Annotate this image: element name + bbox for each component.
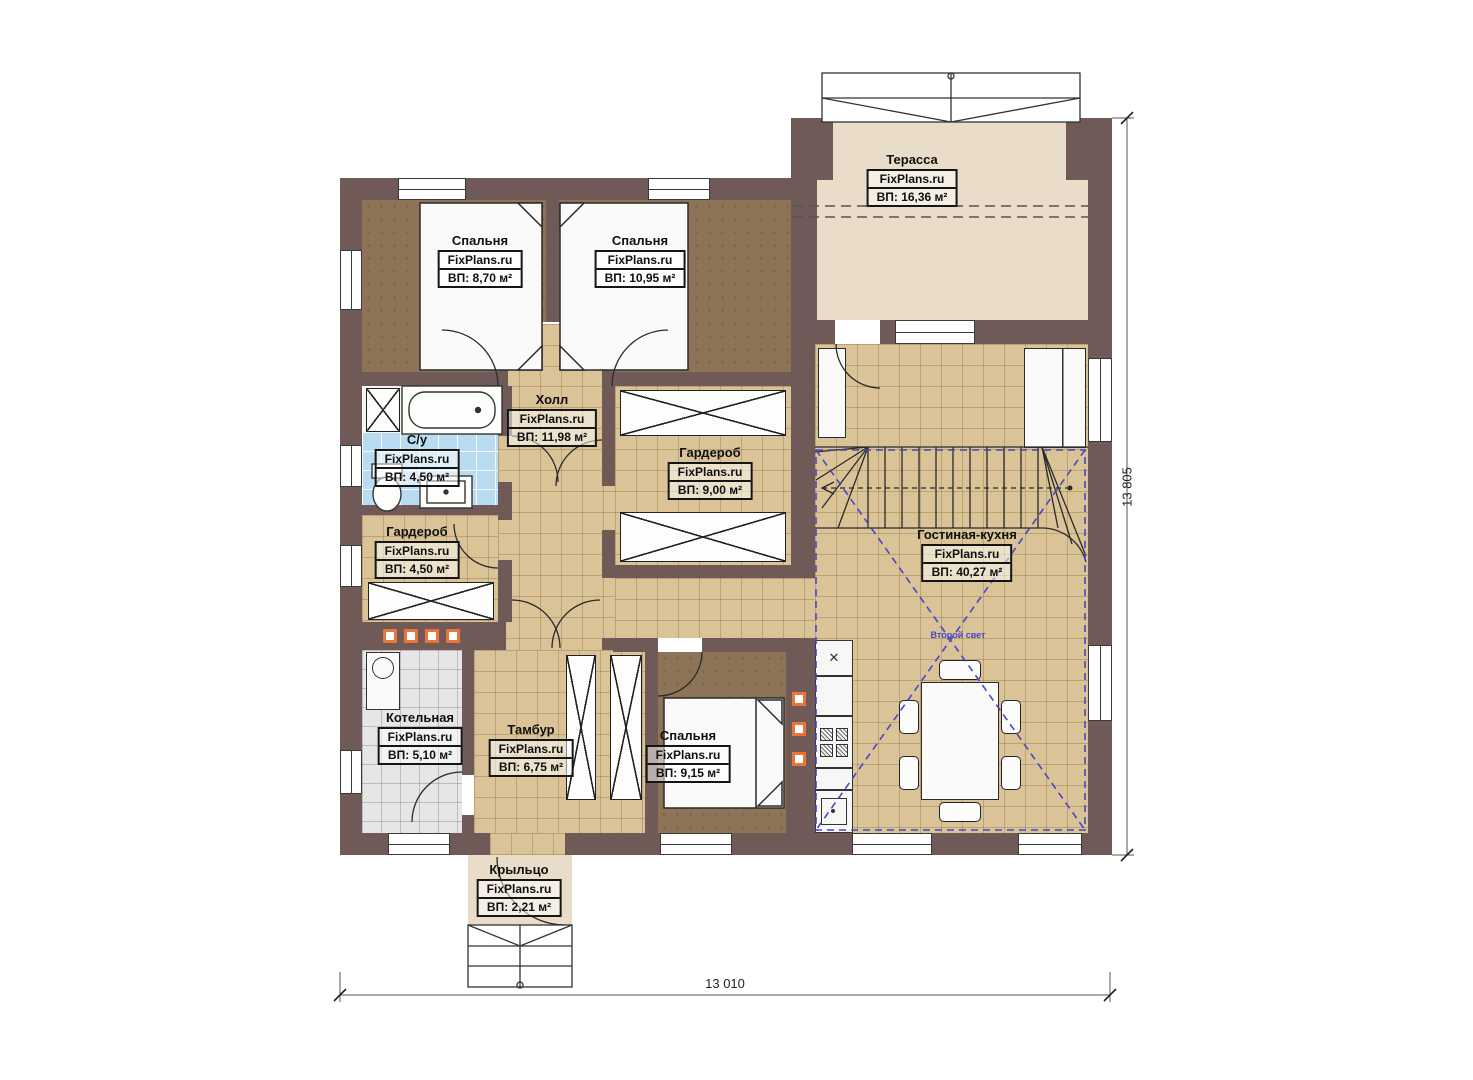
vent-marker (792, 752, 806, 766)
kitchen-sink (815, 790, 853, 833)
kitchen-counter: ✕ (815, 640, 853, 676)
brand-label: FixPlans.ru (869, 171, 956, 189)
room-label-wardrobe-small: Гардероб FixPlans.ru ВП: 4,50 м² (375, 524, 460, 579)
room-info-box: FixPlans.ru ВП: 16,36 м² (867, 169, 958, 207)
window (1088, 645, 1112, 721)
stove (815, 716, 853, 768)
chair (1001, 756, 1021, 790)
wall-segment (1088, 118, 1112, 855)
brand-label: FixPlans.ru (597, 252, 684, 270)
room-name: Крыльцо (477, 862, 562, 877)
room-name: Котельная (378, 710, 463, 725)
window (1018, 833, 1082, 855)
room-info-box: FixPlans.ru ВП: 4,50 м² (375, 541, 460, 579)
second-light-note: Второй свет (931, 630, 986, 640)
vent-marker (404, 629, 418, 643)
vent-marker (425, 629, 439, 643)
dining-table (921, 682, 999, 800)
brand-label: FixPlans.ru (377, 543, 458, 561)
wall-segment (702, 638, 791, 652)
room-name: С/у (375, 432, 460, 447)
room-name: Холл (507, 392, 597, 407)
wardrobe-cabinet (620, 390, 786, 436)
sink-basin (821, 798, 847, 825)
kitchen-counter (815, 676, 853, 716)
terrace-column (791, 118, 833, 180)
room-info-box: FixPlans.ru ВП: 6,75 м² (489, 739, 574, 777)
room-label-boiler-room: Котельная FixPlans.ru ВП: 5,10 м² (378, 710, 463, 765)
window (340, 750, 362, 794)
room-area: ВП: 11,98 м² (509, 429, 595, 445)
window (340, 250, 362, 310)
sofa (818, 348, 846, 438)
window (388, 833, 450, 855)
room-label-living-kitchen: Гостиная-кухня FixPlans.ru ВП: 40,27 м² (917, 527, 1017, 582)
room-name: Гардероб (668, 445, 753, 460)
wall-segment (613, 565, 791, 578)
wall-segment (546, 200, 559, 322)
chair (939, 660, 981, 680)
wall-segment (791, 320, 835, 344)
brand-label: FixPlans.ru (924, 546, 1011, 564)
room-info-box: FixPlans.ru ВП: 8,70 м² (438, 250, 523, 288)
room-name: Спальня (595, 233, 686, 248)
room-info-box: FixPlans.ru ВП: 5,10 м² (378, 727, 463, 765)
room-label-bathroom: С/у FixPlans.ru ВП: 4,50 м² (375, 432, 460, 487)
vent-marker (383, 629, 397, 643)
room-area: ВП: 4,50 м² (377, 561, 458, 577)
room-label-vestibule: Тамбур FixPlans.ru ВП: 6,75 м² (489, 722, 574, 777)
room-area: ВП: 40,27 м² (924, 564, 1011, 580)
room-name: Терасса (867, 152, 958, 167)
wall-segment (498, 512, 512, 520)
room-label-porch: Крыльцо FixPlans.ru ВП: 2,21 м² (477, 862, 562, 917)
boiler-unit (366, 652, 400, 710)
wall-segment (498, 560, 512, 622)
brand-label: FixPlans.ru (380, 729, 461, 747)
room-area: ВП: 6,75 м² (491, 759, 572, 775)
room-label-bedroom-1: Спальня FixPlans.ru ВП: 8,70 м² (438, 233, 523, 288)
brand-label: FixPlans.ru (670, 464, 751, 482)
brand-label: FixPlans.ru (509, 411, 595, 429)
wall-segment (498, 322, 508, 386)
wall-segment (602, 386, 615, 486)
room-area: ВП: 2,21 м² (479, 899, 560, 915)
room-name: Спальня (646, 728, 731, 743)
room-area: ВП: 10,95 м² (597, 270, 684, 286)
brand-label: FixPlans.ru (648, 747, 729, 765)
brand-label: FixPlans.ru (377, 451, 458, 469)
wall-segment (613, 638, 645, 652)
wall-segment (612, 372, 791, 386)
room-area: ВП: 16,36 м² (869, 189, 956, 205)
wardrobe-cabinet (610, 655, 642, 800)
room-info-box: FixPlans.ru ВП: 11,98 м² (507, 409, 597, 447)
floor-plan: ✕ (0, 0, 1473, 1080)
room-area: ВП: 9,00 м² (670, 482, 751, 498)
wall-segment (462, 650, 474, 775)
dimension-height: 13 805 (1120, 467, 1135, 507)
room-area: ВП: 4,50 м² (377, 469, 458, 485)
room-area: ВП: 5,10 м² (380, 747, 461, 763)
room-info-box: FixPlans.ru ВП: 10,95 м² (595, 250, 686, 288)
chair (899, 700, 919, 734)
chair (899, 756, 919, 790)
room-info-box: FixPlans.ru ВП: 4,50 м² (375, 449, 460, 487)
room-name: Гостиная-кухня (917, 527, 1017, 542)
room-name: Спальня (438, 233, 523, 248)
window (895, 320, 975, 344)
room-info-box: FixPlans.ru ВП: 9,15 м² (646, 745, 731, 783)
room-area: ВП: 9,15 м² (648, 765, 729, 781)
room-name: Гардероб (375, 524, 460, 539)
wardrobe-cabinet (368, 582, 494, 620)
room-area: ВП: 8,70 м² (440, 270, 521, 286)
wall-segment (975, 320, 1090, 344)
counter-x-icon: ✕ (829, 650, 840, 666)
window (340, 445, 362, 487)
wall-segment (880, 320, 895, 344)
wall-segment (362, 372, 498, 386)
wardrobe-cabinet (620, 512, 786, 562)
room-info-box: FixPlans.ru ВП: 40,27 м² (922, 544, 1013, 582)
brand-label: FixPlans.ru (479, 881, 560, 899)
room-name: Тамбур (489, 722, 574, 737)
wall-segment (498, 482, 512, 512)
kitchen-counter (815, 768, 853, 790)
brand-label: FixPlans.ru (440, 252, 521, 270)
floor-hall-top (498, 324, 612, 386)
floor-corridor-to-living (615, 578, 815, 638)
wall-segment (462, 815, 474, 833)
wall-segment (602, 322, 612, 386)
vent-marker (792, 722, 806, 736)
porch-steps (468, 925, 572, 988)
vent-marker (446, 629, 460, 643)
room-label-bedroom-2: Спальня FixPlans.ru ВП: 10,95 м² (595, 233, 686, 288)
window (852, 833, 932, 855)
window (340, 545, 362, 587)
dimension-width: 13 010 (705, 976, 745, 991)
terrace-steps (822, 73, 1080, 122)
entry-doorway (490, 833, 565, 855)
window (648, 178, 710, 200)
stove-burners (820, 728, 848, 757)
chair (939, 802, 981, 822)
brand-label: FixPlans.ru (491, 741, 572, 759)
vent-marker (792, 692, 806, 706)
room-info-box: FixPlans.ru ВП: 9,00 м² (668, 462, 753, 500)
sofa-corner (1024, 348, 1086, 448)
room-info-box: FixPlans.ru ВП: 2,21 м² (477, 879, 562, 917)
window (1088, 358, 1112, 442)
room-label-wardrobe-main: Гардероб FixPlans.ru ВП: 9,00 м² (668, 445, 753, 500)
room-label-terrace: Терасса FixPlans.ru ВП: 16,36 м² (867, 152, 958, 207)
window (660, 833, 732, 855)
chair (1001, 700, 1021, 734)
wall-segment (791, 344, 815, 578)
room-label-hall: Холл FixPlans.ru ВП: 11,98 м² (507, 392, 597, 447)
washing-machine (366, 388, 400, 432)
terrace-column (1066, 118, 1112, 180)
window (398, 178, 466, 200)
wall-segment (362, 505, 498, 515)
room-label-bedroom-3: Спальня FixPlans.ru ВП: 9,15 м² (646, 728, 731, 783)
